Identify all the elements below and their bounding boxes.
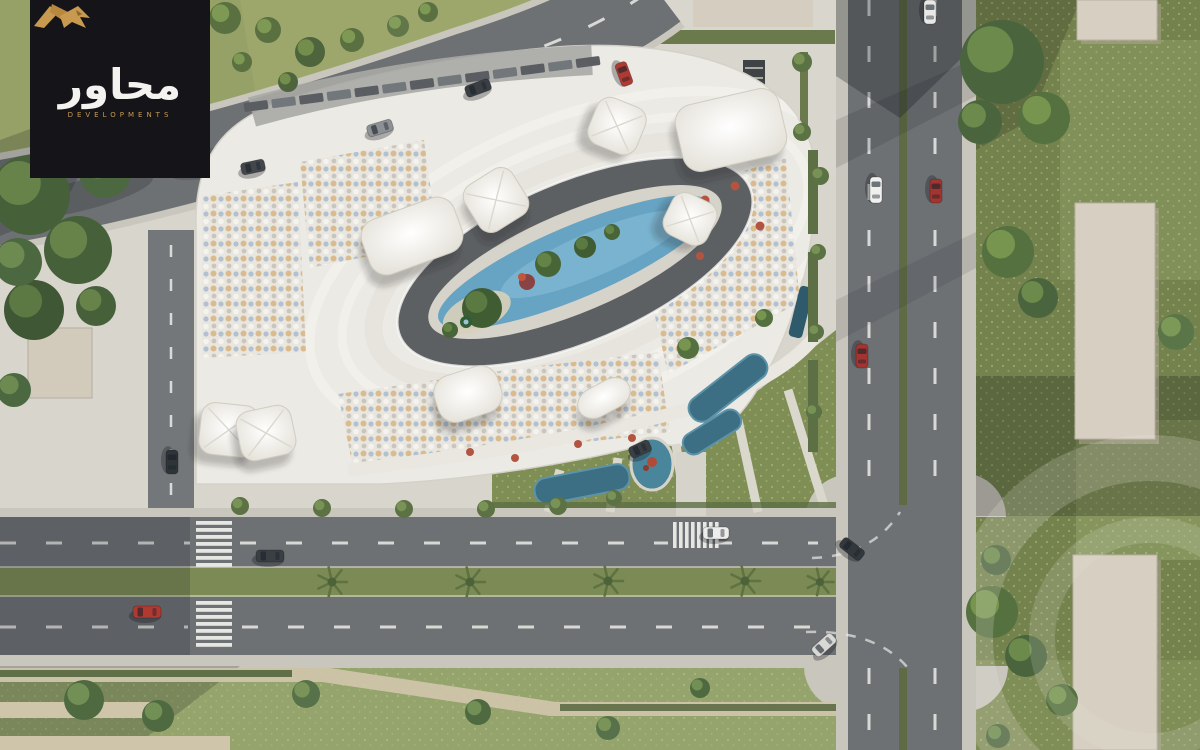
- road-shadow: [0, 517, 190, 655]
- tree: [511, 454, 519, 462]
- tree-highlight: [479, 501, 489, 511]
- tree-highlight: [962, 103, 986, 127]
- tree-highlight: [465, 291, 487, 313]
- crosswalk-stripe: [196, 622, 232, 626]
- tree: [731, 182, 740, 191]
- tree-highlight: [986, 230, 1015, 259]
- park-walkway: [0, 736, 230, 750]
- tree-highlight: [794, 54, 805, 65]
- logo-subtitle: DEVELOPMENTS: [68, 111, 173, 119]
- crosswalk-stripe: [196, 521, 232, 525]
- car: [161, 446, 178, 474]
- crosswalk-stripe: [679, 522, 683, 548]
- tree-highlight: [145, 702, 163, 720]
- tree-highlight: [294, 682, 309, 697]
- car: [925, 175, 942, 203]
- plaza-pad: [693, 0, 813, 27]
- tree-highlight: [605, 225, 614, 234]
- tree-highlight: [807, 405, 816, 414]
- tree-highlight: [315, 500, 325, 510]
- tree-highlight: [598, 718, 611, 731]
- tree-highlight: [67, 683, 89, 705]
- tree-highlight: [1161, 317, 1181, 337]
- tree: [628, 434, 636, 442]
- car: [865, 173, 882, 203]
- tree-highlight: [79, 289, 101, 311]
- park-hedge: [560, 704, 836, 711]
- tree: [574, 440, 582, 448]
- tree-highlight: [757, 310, 767, 320]
- tree: [647, 457, 657, 467]
- crosswalk-stripe: [196, 535, 232, 539]
- crosswalk-stripe: [196, 549, 232, 553]
- car: [851, 340, 868, 368]
- tree-highlight: [298, 39, 315, 56]
- building-pad: [1075, 203, 1155, 439]
- developer-logo-badge: محاور DEVELOPMENTS: [30, 0, 210, 178]
- tree-highlight: [342, 30, 355, 43]
- tree-highlight: [813, 168, 823, 178]
- crosswalk-stripe: [196, 528, 232, 532]
- crosswalk-stripe: [196, 563, 232, 567]
- crosswalk-stripe: [196, 615, 232, 619]
- crosswalk-stripe: [691, 522, 695, 548]
- crosswalk-stripe: [673, 522, 677, 548]
- crosswalk-stripe: [685, 522, 689, 548]
- tree-highlight: [551, 498, 561, 508]
- building-pad: [1077, 0, 1157, 40]
- tree-highlight: [1009, 638, 1032, 661]
- car: [699, 527, 729, 544]
- tree: [464, 320, 469, 325]
- east-road-median: [899, 668, 907, 750]
- ramp-stripe: [745, 67, 763, 69]
- tree-highlight: [1021, 281, 1043, 303]
- crosswalk-stripe: [196, 608, 232, 612]
- tree-highlight: [443, 323, 452, 332]
- crosswalk-stripe: [196, 601, 232, 605]
- tree-highlight: [397, 501, 407, 511]
- tree-highlight: [967, 26, 1013, 72]
- tree-highlight: [809, 325, 818, 334]
- crosswalk-stripe: [196, 542, 232, 546]
- tree-highlight: [811, 245, 820, 254]
- tree-highlight: [389, 17, 401, 29]
- tree: [466, 448, 474, 456]
- tree: [643, 465, 649, 471]
- park-hedge: [0, 670, 292, 677]
- masterplan-aerial-render: محاور DEVELOPMENTS: [0, 0, 1200, 750]
- crosswalk-stripe: [196, 643, 232, 647]
- tree-highlight: [692, 680, 703, 691]
- car: [252, 550, 284, 567]
- tree: [756, 222, 765, 231]
- tree-highlight: [467, 701, 481, 715]
- tree-highlight: [607, 491, 616, 500]
- tree-highlight: [280, 74, 291, 85]
- falcon-logo-icon: [30, 0, 94, 40]
- tree-highlight: [795, 124, 805, 134]
- tree-highlight: [0, 376, 19, 395]
- seating-terrace: [202, 182, 306, 358]
- car: [129, 606, 161, 623]
- car: [919, 0, 936, 24]
- crosswalk-stripe: [196, 556, 232, 560]
- tree-highlight: [537, 253, 551, 267]
- tree-highlight: [233, 498, 243, 508]
- tree-highlight: [576, 238, 588, 250]
- tree-highlight: [1022, 96, 1051, 125]
- crosswalk-stripe: [196, 629, 232, 633]
- tree: [518, 273, 526, 281]
- tree-highlight: [212, 4, 230, 22]
- tree-highlight: [50, 221, 87, 258]
- tree-highlight: [420, 4, 431, 15]
- tree-highlight: [679, 339, 691, 351]
- tree: [696, 252, 704, 260]
- crosswalk-stripe: [196, 636, 232, 640]
- tree-highlight: [234, 54, 245, 65]
- tree-highlight: [9, 285, 42, 318]
- tree-highlight: [257, 19, 271, 33]
- logo-arabic-wordmark: محاور: [59, 64, 181, 106]
